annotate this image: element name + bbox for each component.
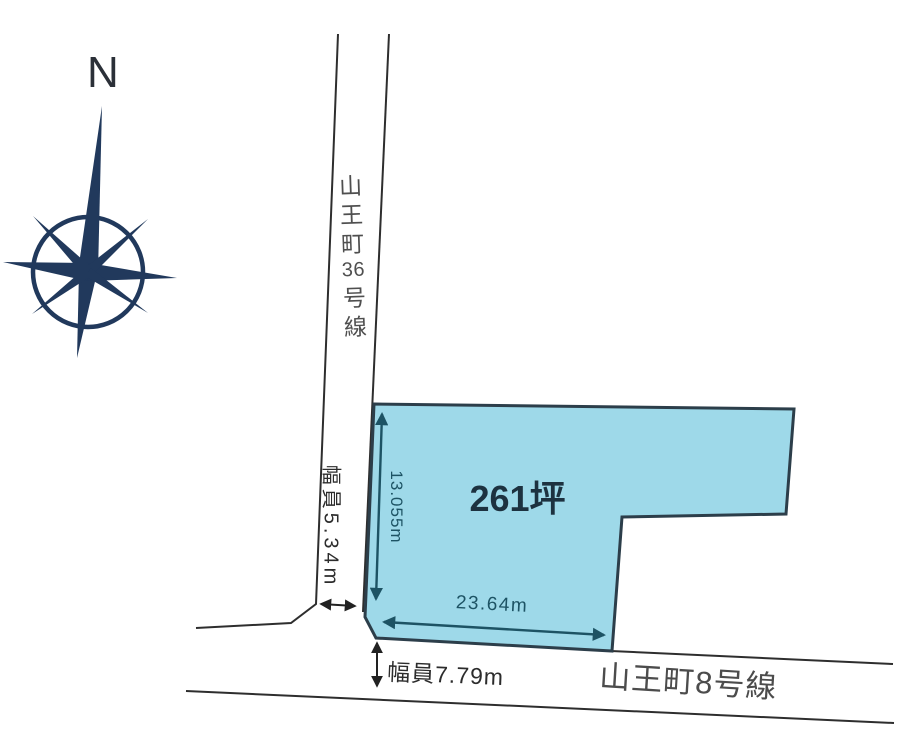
road-name-char: 号 [343, 286, 367, 312]
road-name-char: 王 [340, 202, 364, 228]
horizontal-road-width-label: 幅員7.79m [387, 653, 505, 692]
road-name-char: 山 [339, 174, 363, 200]
vertical-road-width-arrow [321, 604, 355, 606]
road-name-char: 36 [342, 260, 366, 282]
vertical-road-width-label: 幅員5.34m [319, 452, 348, 602]
compass-north-label: N [87, 48, 119, 98]
lot-layout-diagram: N 山 王 町 36 号 線 幅員5.34m 13.055m 261坪 23.6… [0, 0, 900, 738]
road-name-char: 町 [341, 231, 365, 257]
horizontal-road-edges [186, 651, 894, 723]
diagram-drawing [0, 0, 900, 738]
vertical-road-name: 山 王 町 36 号 線 [333, 173, 373, 340]
plot-depth-label: 13.055m [386, 461, 406, 553]
road-name-char: 線 [344, 314, 368, 340]
plot-area-label: 261坪 [445, 478, 590, 520]
compass-rose-icon [3, 106, 177, 358]
land-plot-shape [365, 404, 794, 651]
